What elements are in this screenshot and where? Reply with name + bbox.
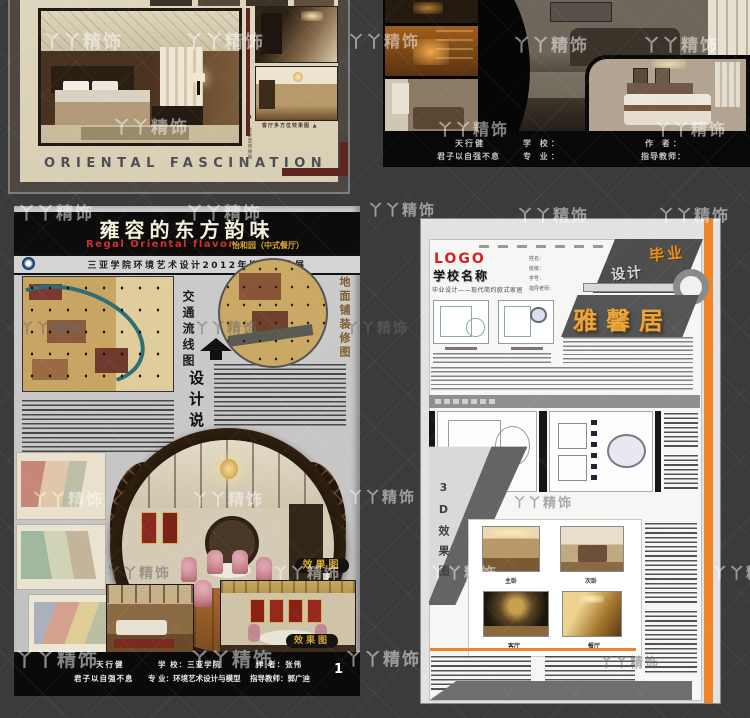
window-bright (708, 0, 750, 58)
plan-grid-dots (220, 260, 326, 366)
motto-line2: 君子以自强不息 (437, 151, 500, 162)
render-thumb-dining (562, 591, 622, 637)
black-curve-mask (480, 0, 530, 131)
logo-text: LOGO (434, 251, 486, 267)
chair-pink (248, 624, 260, 642)
mini-plan (498, 300, 554, 344)
dining-photo-small (255, 66, 338, 121)
field-advisor: 指导老师： (529, 285, 554, 292)
ceiling-gold (221, 581, 355, 593)
window-light (392, 83, 409, 114)
black-bar (655, 411, 661, 492)
sketch-strokes (21, 531, 100, 579)
gray-band (429, 395, 700, 408)
side-paragraph (645, 523, 697, 605)
frame-art (655, 68, 670, 85)
poster-oriental: 客厅多方位效果图 ▲ ◀ 主卧室效果图 ORIENTAL FASCINATION (10, 0, 348, 192)
sofa-white (116, 620, 168, 635)
render-label-pill: 效果图 (286, 634, 338, 648)
chair-pink (181, 557, 197, 582)
major-label: 专 业： (523, 151, 562, 162)
plan-outline (504, 306, 530, 337)
footer-advisor: 指导教师：郭广迪 (250, 673, 310, 684)
corner-bracket-vertical (340, 142, 348, 176)
bath-photo (385, 26, 478, 76)
paragraph-small (563, 337, 693, 363)
field-name: 姓名： (529, 255, 544, 262)
field-id: 学号： (529, 275, 544, 282)
chair-pink (194, 580, 212, 607)
plan-dots (591, 420, 597, 483)
foyer-photo (385, 0, 478, 23)
chandelier-dot (293, 72, 303, 82)
subtitle-en: Regal Oriental flavor (86, 239, 235, 250)
paragraph-right (214, 364, 346, 426)
render-photo-left (106, 584, 194, 654)
advisor-label: 指导教师： (641, 151, 686, 162)
chair-pink (207, 550, 223, 574)
window-light (715, 62, 740, 107)
side-text-block (664, 455, 698, 491)
paragraph-wide (431, 367, 693, 392)
poster-regal: 雍容的东方韵味 Regal Oriental flavor 怡和园（中式餐厅） … (14, 206, 360, 696)
sketch-strokes (21, 461, 100, 507)
ceiling-glow (580, 595, 603, 603)
wall-art-red (141, 512, 157, 544)
render-thumb-master (482, 526, 540, 572)
lamp-glow (413, 2, 443, 14)
side-caption: ◀ 主卧室效果图 (246, 115, 252, 160)
chandelier (220, 459, 238, 479)
render-caption-second: 次卧 (585, 576, 597, 585)
cabinet-shape (261, 13, 282, 54)
top-strip-thumb (198, 0, 240, 6)
sketch-strokes (34, 602, 110, 644)
lamp-stem (197, 81, 200, 95)
wall-art-red (162, 512, 178, 544)
chair-pink (256, 557, 272, 582)
photos-caption: 客厅多方位效果图 ▲ (262, 122, 318, 129)
ceiling-beams (107, 585, 193, 603)
mini-plan (433, 300, 489, 344)
sketch-thumb (16, 452, 106, 520)
top-dashes (479, 245, 607, 248)
circular-plan-image (218, 258, 328, 368)
watermark: 丫丫精饰 (368, 199, 436, 220)
paragraph-small (433, 353, 551, 365)
poster-oriental-title: ORIENTAL FASCINATION (44, 156, 327, 171)
poster-european: 天行健 君子以自强不息 学 校： 专 业： 作 者： 指导教师： (383, 0, 750, 167)
side-paragraph (645, 611, 697, 673)
footer-author: 作 者：张伟 (256, 659, 302, 670)
wall-art-red (269, 599, 284, 623)
school-label: 学 校： (523, 138, 562, 149)
plan-grid-dots (23, 277, 173, 391)
living-photo-small (255, 6, 338, 63)
shelf-lines (436, 30, 473, 65)
chair-pink (232, 550, 248, 574)
tagline: 毕业设计——现代简约欧式家居 (432, 285, 523, 294)
render-thumb-living (483, 591, 549, 637)
wall-art-red (307, 599, 322, 623)
school-name: 学校名称 (433, 267, 489, 284)
footer-wedge (430, 681, 692, 700)
sketch-thumb (28, 594, 116, 654)
badge-word1: 毕业 (648, 241, 686, 266)
footer-school: 学 校：三亚学院 (158, 659, 221, 670)
author-label: 作 者： (645, 138, 684, 149)
traffic-flow-label: 交通流线图 (180, 290, 197, 380)
wall-art-red (250, 599, 265, 623)
rug (81, 127, 190, 140)
footer-motto2: 君子以自强不息 (74, 673, 134, 684)
wall-art-red (288, 599, 303, 623)
badge-word2: 设计 (610, 261, 644, 284)
lamp-glow (301, 11, 323, 21)
plan-furniture (558, 423, 587, 449)
poster-modern-title: 雅馨居 (573, 301, 672, 336)
render-label-pill: 效果图 (295, 558, 349, 573)
bedroom-photo-small (385, 79, 478, 135)
black-bar (539, 411, 547, 492)
bed-shape (578, 545, 607, 562)
footer-major: 专 业：环境艺术设计与模型 (148, 673, 241, 684)
screenshot-canvas: 客厅多方位效果图 ▲ ◀ 主卧室效果图 ORIENTAL FASCINATION (0, 0, 750, 718)
top-strip-thumb (150, 0, 192, 6)
plan-feature-circle (530, 307, 547, 324)
orange-divider (430, 648, 636, 651)
ceiling-lamp-glow (652, 59, 686, 69)
bed-duvet (624, 94, 712, 126)
render-thumb-second (560, 526, 624, 572)
wall-art (550, 2, 612, 22)
footer-motto1: 天行健 (96, 659, 125, 670)
side-text-block (664, 413, 698, 447)
floor-light (484, 626, 548, 636)
bed-shape (55, 90, 150, 124)
ceiling (41, 11, 239, 51)
motto-line1: 天行健 (455, 138, 485, 149)
label-3d-render: 3D效果图 (435, 481, 451, 601)
poster-modern: LOGO 学校名称 毕业设计——现代简约欧式家居 姓名： 班级： 学号： 指导老… (421, 219, 720, 703)
bed-shape (413, 107, 464, 129)
mini-plan-caption (511, 347, 543, 350)
paving-label: 地面铺装修图 (336, 276, 352, 376)
plan-round-room (466, 318, 484, 338)
floorplan-image (22, 276, 174, 392)
bedroom-inset-photo (585, 55, 750, 135)
field-class: 班级： (529, 265, 544, 272)
plan-feature-oval (607, 434, 646, 468)
sketch-thumb (16, 524, 106, 590)
plan-furniture (558, 455, 587, 481)
mini-plan-caption (445, 347, 477, 350)
bedroom-photo (38, 8, 242, 146)
band-caption-bars (435, 399, 497, 404)
cabinet-shape (259, 80, 275, 109)
badge-bar (583, 283, 685, 292)
render-caption-master: 主卧 (505, 576, 517, 585)
footer-page-number: 1 (334, 662, 343, 677)
ceiling-glow (491, 529, 530, 536)
frame-art (633, 68, 648, 85)
floorplan-large (549, 411, 653, 492)
subtitle-cn: 怡和园（中式餐厅） (232, 240, 304, 251)
rug-red (114, 639, 174, 647)
